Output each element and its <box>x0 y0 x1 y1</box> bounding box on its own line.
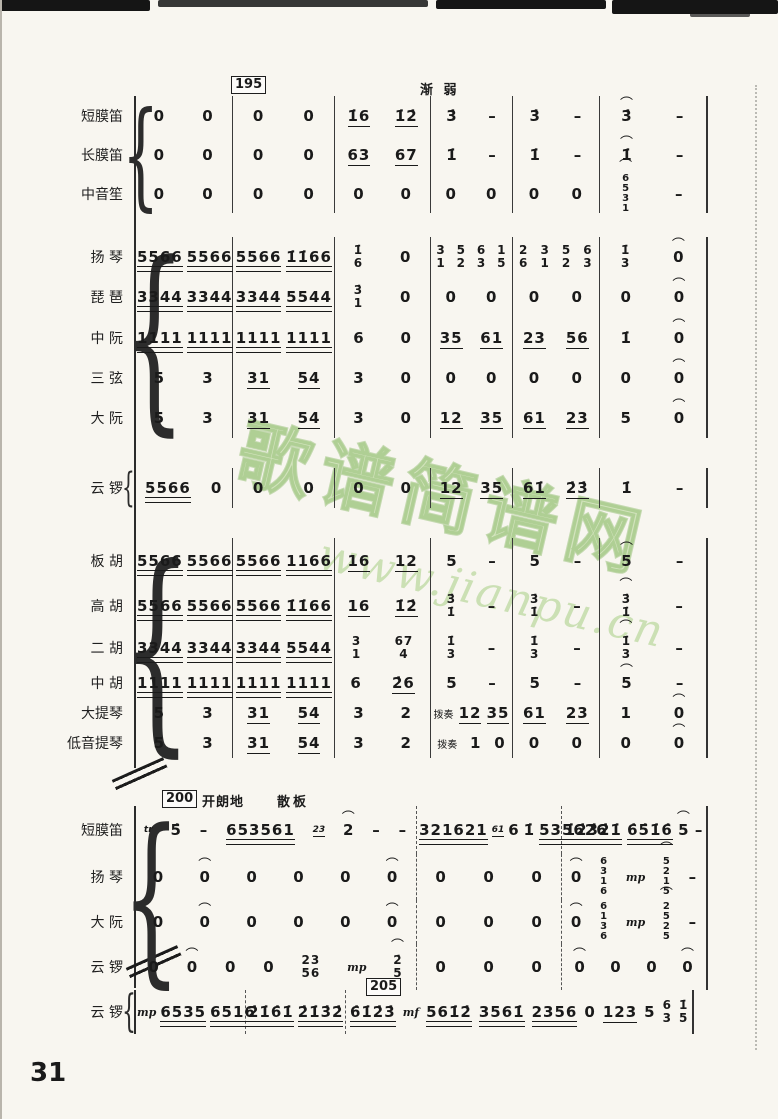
note-token: 1111 <box>284 674 334 692</box>
note-token: 0 <box>200 146 215 164</box>
note-token: 35 <box>438 329 465 347</box>
note-token: 0 <box>484 288 499 306</box>
measure: 000 <box>416 944 561 990</box>
instrument-label: 三 弦 <box>10 368 135 388</box>
measure: 1̇60 <box>334 237 430 277</box>
note-token: 674 <box>393 635 416 660</box>
note-token: 0 <box>492 734 507 752</box>
note-token: 3344 <box>135 288 185 306</box>
instrument-label: 云 锣 <box>10 957 135 977</box>
measure: 10 <box>599 698 708 728</box>
staff-line: 556655665566116616125–5–5– <box>135 538 708 583</box>
instrument-label: 云 锣 <box>10 478 135 498</box>
measure: 00 <box>334 174 430 213</box>
dynamic-marking: mp <box>624 871 647 884</box>
instrument-label: 中 阮 <box>10 328 135 348</box>
note-token: – <box>486 597 499 615</box>
note-token: 0 <box>527 734 542 752</box>
note-token: 0 <box>672 329 687 347</box>
measure: 00 <box>430 174 512 213</box>
note-token: 52 <box>560 244 573 269</box>
note-token: 5̇ <box>169 821 184 839</box>
note-token: 1111 <box>185 674 235 692</box>
note-token: 0 <box>185 958 200 976</box>
note-token: 5 <box>619 552 634 570</box>
note-token: 61 <box>478 329 505 347</box>
measure: 2356 <box>512 317 599 358</box>
score-row: 中 阮111111111111111160356123561̇0 <box>10 317 708 358</box>
measure: 11111111 <box>232 317 334 358</box>
note-token: 1̇3 <box>619 244 632 269</box>
note-token: – <box>572 552 585 570</box>
note-token: 0 <box>291 913 306 931</box>
instrument-label: 长膜笛 <box>10 145 135 165</box>
measure: 62̇6 <box>334 667 430 698</box>
staff-line: 111111111111111160356123561̇0 <box>135 317 708 358</box>
instrument-label: 中 胡 <box>10 673 135 693</box>
note-token: 0 <box>527 185 542 203</box>
score-row: 琵 琶33443344334455443̇10000000 <box>10 277 708 317</box>
score-row: 二 胡3344334433445544316741̇3–1̇3–1̇3– <box>10 629 708 667</box>
score-page: 歌谱简谱网 www.jianpu.cn 195 渐 弱 200 开朗地 散板 2… <box>0 0 778 1119</box>
note-token: 5 <box>152 409 167 427</box>
group-brace: { <box>122 990 132 1034</box>
measure: 55660 <box>135 468 232 508</box>
note-token: 1 <box>468 734 483 752</box>
measure: 0000 <box>561 944 708 990</box>
measure: 33445544 <box>232 277 334 317</box>
note-token: 61 <box>521 704 548 722</box>
measure: 5– <box>430 538 512 583</box>
note-token: 0 <box>146 958 161 976</box>
note-token: 0 <box>570 734 585 752</box>
score-row: 短膜笛00001̇61̇2̇3̇–3̇–3̇– <box>10 96 708 136</box>
note-token: 31 <box>245 369 272 387</box>
measure: 5– <box>430 667 512 698</box>
note-token: 1̇ <box>522 821 537 839</box>
note-token: 12 <box>393 552 420 570</box>
measure: 1̇– <box>599 136 708 174</box>
note-token: – <box>673 597 686 615</box>
group-brace: { <box>122 96 132 213</box>
note-token: – <box>673 185 686 203</box>
note-token: 0 <box>443 369 458 387</box>
note-token: 54 <box>296 704 323 722</box>
note-token: 1̇ <box>619 329 634 347</box>
note-token: 0 <box>351 185 366 203</box>
measure: 6123 <box>512 698 599 728</box>
scan-trim-line <box>755 85 757 1050</box>
dynamic-marking: mp <box>135 1006 158 1019</box>
note-token: 54 <box>296 409 323 427</box>
measure: 1̇– <box>430 136 512 174</box>
instrument-label: 板 胡 <box>10 551 135 571</box>
measure: 3̇– <box>430 96 512 136</box>
note-token: 0 <box>301 479 316 497</box>
note-token: 0 <box>398 248 413 266</box>
measure: 1̇3– <box>430 629 512 667</box>
score-row: 中 胡111111111111111162̇65–5–5– <box>10 667 708 698</box>
note-token: 12 <box>457 704 484 722</box>
note-token: 3344 <box>185 639 235 657</box>
measure: 3̇1̇– <box>430 583 512 629</box>
note-token: 3 <box>200 734 215 752</box>
note-token: 3344 <box>135 639 185 657</box>
measure: 1235 <box>430 468 512 508</box>
note-token: 56 <box>564 329 591 347</box>
instrument-label: 云 锣 <box>10 1002 135 1022</box>
note-token: 3344 <box>234 639 284 657</box>
note-token: 1166 <box>284 552 334 570</box>
note-token: 35 <box>478 409 505 427</box>
note-token: 0 <box>570 185 585 203</box>
note-token: 3 <box>200 369 215 387</box>
note-token: 3344 <box>185 288 235 306</box>
note-token: 0 <box>481 868 496 886</box>
note-token: 35 <box>485 704 512 722</box>
note-token: – <box>674 674 687 692</box>
measure: 1̇– <box>599 468 708 508</box>
score-row: 云 锣mp653565162̇1̇6̇1̇2̇1̇3̇2̇6̇1̇2̇3̇mf5… <box>10 990 694 1034</box>
instrument-label: 短膜笛 <box>10 106 135 126</box>
note-token: 12 <box>438 479 465 497</box>
note-token: 2 <box>399 704 414 722</box>
note-token: 6 <box>506 821 521 839</box>
measure: 1̇– <box>512 136 599 174</box>
note-token: 0 <box>251 146 266 164</box>
note-token: 0 <box>198 913 213 931</box>
measure: 1̇61̇2̇ <box>334 96 430 136</box>
note-token: 1̇3 <box>620 635 633 660</box>
note-token: – <box>486 639 499 657</box>
measure: 3̇– <box>599 96 708 136</box>
measure: 61̇2̇3̇ <box>512 468 599 508</box>
note-token: 0 <box>443 288 458 306</box>
note-token: 0 <box>399 479 414 497</box>
note-token: 5566 <box>234 248 284 266</box>
note-token: 0 <box>619 734 634 752</box>
note-token: 3 <box>200 704 215 722</box>
note-token: – <box>572 146 585 164</box>
note-token: 3̇ <box>527 107 542 125</box>
note-token: – <box>674 479 687 497</box>
note-token: 6̇5̇1̇6̇ <box>625 821 675 839</box>
note-token: 0 <box>433 913 448 931</box>
note-token: 5566 <box>135 248 185 266</box>
note-token: 35 <box>478 479 505 497</box>
dynamic-marking: mp <box>345 961 368 974</box>
group-brace: { <box>122 806 132 990</box>
measure: 55661166 <box>232 538 334 583</box>
note-token: 31 <box>245 704 272 722</box>
measure: 3154 <box>232 398 334 438</box>
measure: mp65356516 <box>135 990 245 1034</box>
note-token: 0 <box>484 369 499 387</box>
note-token: 31 <box>245 734 272 752</box>
note-token: 1111 <box>135 329 185 347</box>
score-row: 低音提琴53315432拨奏100000 <box>10 728 708 758</box>
note-token: 23 <box>521 329 548 347</box>
measure: 00 <box>232 174 334 213</box>
staff-line: 00001̇61̇2̇3̇–3̇–3̇– <box>135 96 708 136</box>
instrument-label: 高 胡 <box>10 596 135 616</box>
note-token: 5 <box>676 821 691 839</box>
note-token: 23 <box>564 409 591 427</box>
note-token: 67 <box>393 146 420 164</box>
note-token: 0 <box>301 146 316 164</box>
score-row: 云 锣00002356mp2̇50000000 <box>10 944 708 990</box>
note-token: 2̇1̇6̇1̇ <box>246 1003 296 1021</box>
note-token: 5 <box>642 1003 657 1021</box>
note-token: 0 <box>398 288 413 306</box>
note-token: 5566 <box>143 479 193 497</box>
note-token: 6531 <box>620 174 632 214</box>
measure: 6367 <box>334 136 430 174</box>
measure: 55661̇1̇66 <box>232 237 334 277</box>
staff-line: 00000000006531– <box>135 174 708 213</box>
measure: 3̇1̇– <box>512 583 599 629</box>
note-token: 1̇3 <box>445 635 458 660</box>
note-token: 0 <box>338 913 353 931</box>
note-token: 0 <box>151 913 166 931</box>
measure: 00 <box>512 174 599 213</box>
measure: 拨奏10 <box>430 728 512 758</box>
note-token: 5566 <box>185 248 235 266</box>
measure: 3561 <box>430 317 512 358</box>
score-row: 短膜笛tr5̇–653561232––3216216161̇5356261̇2̇… <box>10 806 708 854</box>
note-token: 3 <box>351 704 366 722</box>
note-token: 63 <box>475 244 488 269</box>
note-token: 0 <box>251 185 266 203</box>
measure: 31526315 <box>430 237 512 277</box>
staff-line: 53315432拨奏1235612310 <box>135 698 708 728</box>
note-token: 0 <box>351 479 366 497</box>
measure: 30 <box>334 398 430 438</box>
note-token: 3 <box>351 409 366 427</box>
note-token: 321621 <box>417 821 490 839</box>
note-token: 63 <box>346 146 373 164</box>
note-token: 16 <box>346 597 373 615</box>
score-row: 长膜笛000063671̇–1̇–1̇– <box>10 136 708 174</box>
measure: 3̇10 <box>334 277 430 317</box>
note-token: 0 <box>484 185 499 203</box>
note-token: 5 <box>444 674 459 692</box>
measure: 30 <box>334 358 430 398</box>
note-token: 0 <box>572 958 587 976</box>
note-token: 0 <box>200 185 215 203</box>
note-token: 26 <box>517 244 530 269</box>
measure: 1235 <box>430 398 512 438</box>
ornament-marking: tr <box>142 825 155 835</box>
note-token: 6136 <box>598 902 610 942</box>
note-token: 61 <box>521 409 548 427</box>
note-token: – <box>397 821 410 839</box>
note-token: 0 <box>433 868 448 886</box>
note-token: – <box>572 674 585 692</box>
measure: 11111111 <box>232 667 334 698</box>
rehearsal-mark-195: 195 <box>231 76 266 94</box>
score-row: 高 胡5566556655661̇1̇66161̇2̇3̇1̇–3̇1̇–3̇1… <box>10 583 708 629</box>
measure: 50 <box>599 398 708 438</box>
measure: 1̇2̇3̇2̇1̇6̇5̇1̇6̇5– <box>561 806 708 854</box>
note-token: 3̇1̇ <box>528 593 541 618</box>
note-token: 31 <box>350 635 363 660</box>
page-number: 31 <box>30 1058 66 1088</box>
note-token: 0 <box>680 958 695 976</box>
note-token: – <box>486 146 499 164</box>
note-token: 0 <box>399 369 414 387</box>
note-token: 3̇1̇ <box>620 593 633 618</box>
note-token: 54 <box>296 734 323 752</box>
measure: 00 <box>599 277 708 317</box>
instrument-label: 大 阮 <box>10 408 135 428</box>
note-token: – <box>674 552 687 570</box>
note-token: 0 <box>481 913 496 931</box>
note-token: 0 <box>385 913 400 931</box>
note-token: 1̇3 <box>528 635 541 660</box>
note-token: – <box>198 821 211 839</box>
note-token: 0 <box>619 369 634 387</box>
note-token: 61̇ <box>521 479 548 497</box>
instrument-group: {扬 琴5566556655661̇1̇661̇6031526315263152… <box>10 237 708 438</box>
measure: 00 <box>232 468 334 508</box>
note-token: 1̇6 <box>346 107 373 125</box>
note-token: 5566 <box>135 597 185 615</box>
note-token: 5544 <box>284 639 334 657</box>
staff-line: 111111111111111162̇65–5–5– <box>135 667 708 698</box>
note-token: 5566 <box>185 597 235 615</box>
measure: 26315263 <box>512 237 599 277</box>
note-token: 3 <box>351 734 366 752</box>
score-row: 大 阮533154301235612350 <box>10 398 708 438</box>
note-token: – <box>687 913 700 931</box>
technique-label: 拨奏 <box>431 706 455 721</box>
measure: 3̇1̇– <box>599 583 708 629</box>
note-token: 15 <box>495 244 508 269</box>
note-token: 0 <box>399 329 414 347</box>
note-token: 1̇ <box>444 146 459 164</box>
measure: 00 <box>232 96 334 136</box>
instrument-label: 低音提琴 <box>10 733 135 753</box>
measure: 1612 <box>334 538 430 583</box>
measure: 00 <box>512 277 599 317</box>
staff-line: 53315430000000 <box>135 358 708 398</box>
score-row: 扬 琴5566556655661̇1̇661̇60315263152631526… <box>10 237 708 277</box>
staff-line: tr5̇–653561232––3216216161̇5356261̇2̇3̇2… <box>135 806 708 854</box>
note-token: 0 <box>569 913 584 931</box>
note-token: 1̇2̇3̇2̇1̇ <box>563 821 624 839</box>
instrument-group: {云 锣556600000123561̇2̇3̇1̇– <box>10 468 708 508</box>
staff-line: 5566556655661̇1̇661̇6031526315263152631̇… <box>135 237 708 277</box>
note-token: 2̇1̇3̇2̇ <box>296 1003 346 1021</box>
note-token: 0 <box>244 913 259 931</box>
measure: 33445544 <box>232 629 334 667</box>
instrument-label: 中音笙 <box>10 184 135 204</box>
note-token: – <box>486 107 499 125</box>
note-token: – <box>486 674 499 692</box>
note-token: 2356 <box>530 1003 580 1021</box>
measure: 00 <box>512 728 599 758</box>
note-token: 0 <box>569 868 584 886</box>
measure: 1̇3– <box>512 629 599 667</box>
note-token: 5 <box>152 704 167 722</box>
note-token: 6 <box>351 329 366 347</box>
note-token: 5544 <box>284 288 334 306</box>
measure: 1̇0 <box>599 317 708 358</box>
measure: 60 <box>334 317 430 358</box>
score-row: 云 锣556600000123561̇2̇3̇1̇– <box>10 468 708 508</box>
note-token: 1111 <box>284 329 334 347</box>
note-token: 0 <box>152 146 167 164</box>
note-token: 0 <box>481 958 496 976</box>
instrument-label: 二 胡 <box>10 638 135 658</box>
score-row: 三 弦53315430000000 <box>10 358 708 398</box>
note-token: – <box>571 597 584 615</box>
measure: 5– <box>599 538 708 583</box>
group-brace: { <box>122 237 132 438</box>
note-token: 0 <box>529 913 544 931</box>
note-token: – <box>370 821 383 839</box>
measure: 00 <box>599 358 708 398</box>
note-token: – <box>572 107 585 125</box>
measure: 00 <box>430 358 512 398</box>
note-token: 6535 <box>158 1003 208 1021</box>
staff-line: 33443344334455443̇10000000 <box>135 277 708 317</box>
note-token: 3̇1 <box>352 284 365 309</box>
note-token: 2 <box>399 734 414 752</box>
instrument-label: 琵 琶 <box>10 287 135 307</box>
note-token: 3 <box>200 409 215 427</box>
dynamic-marking: mp <box>624 916 647 929</box>
note-token: 0 <box>529 868 544 886</box>
instrument-label: 大提琴 <box>10 703 135 723</box>
note-token: 0 <box>570 288 585 306</box>
note-token: – <box>693 821 706 839</box>
staff-line: 00002356mp2̇50000000 <box>135 944 708 990</box>
measure: 6531– <box>599 174 708 213</box>
note-token: 1̇ <box>619 479 634 497</box>
note-token: 3̇1̇ <box>445 593 458 618</box>
note-token: 52 <box>455 244 468 269</box>
note-token: 0 <box>433 958 448 976</box>
note-token: – <box>673 639 686 657</box>
instrument-group: {短膜笛00001̇61̇2̇3̇–3̇–3̇–长膜笛000063671̇–1̇… <box>10 96 708 213</box>
note-token: 0 <box>570 369 585 387</box>
measure: 拨奏1235 <box>430 698 512 728</box>
measure: 06316mp5215– <box>561 854 708 900</box>
note-token: 2̇5 <box>391 954 404 979</box>
measure: 3154 <box>232 358 334 398</box>
measure: 3154 <box>232 698 334 728</box>
note-token: 123 <box>601 1003 639 1021</box>
note-token: 1̇2̇ <box>393 107 420 125</box>
note-token: 2 <box>341 821 356 839</box>
note-token: 0 <box>244 868 259 886</box>
measure: 1̇3– <box>599 629 708 667</box>
note-token: 0 <box>527 369 542 387</box>
note-token: 653561 <box>224 821 297 839</box>
measure: 00 <box>512 358 599 398</box>
note-token: 5 <box>619 409 634 427</box>
note-token: 0 <box>399 409 414 427</box>
score-row: 大提琴53315432拨奏1235612310 <box>10 698 708 728</box>
note-token: 16 <box>346 552 373 570</box>
note-token: 31 <box>538 244 551 269</box>
note-token: 0 <box>261 958 276 976</box>
note-token: 1111 <box>135 674 185 692</box>
note-token: 1 <box>619 704 634 722</box>
staff-line: 53315432拨奏100000 <box>135 728 708 758</box>
